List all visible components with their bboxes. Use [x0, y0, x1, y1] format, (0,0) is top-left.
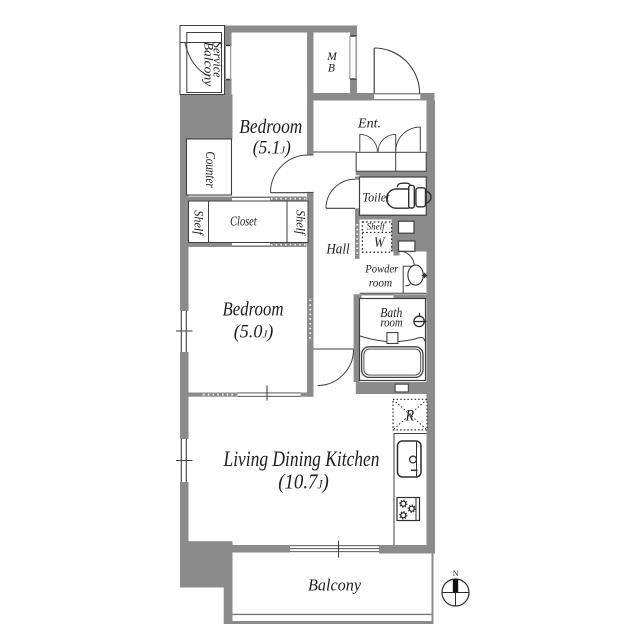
svg-text:Toilet: Toilet	[363, 189, 390, 204]
svg-text:M: M	[326, 51, 338, 63]
svg-text:Ent.: Ent.	[357, 117, 381, 132]
svg-text:Balcony: Balcony	[308, 575, 361, 594]
svg-text:Closet: Closet	[230, 214, 257, 229]
svg-text:Living Dining Kitchen: Living Dining Kitchen	[223, 446, 380, 471]
svg-text:Shelf: Shelf	[192, 210, 206, 236]
svg-text:Shelf: Shelf	[293, 210, 307, 236]
svg-text:room: room	[380, 316, 402, 330]
svg-text:Bedroom: Bedroom	[239, 116, 302, 138]
svg-text:room: room	[369, 277, 393, 289]
svg-text:R: R	[405, 408, 415, 425]
svg-text:Counter: Counter	[202, 151, 217, 188]
svg-text:Hall: Hall	[326, 241, 350, 258]
svg-text:Balcony: Balcony	[201, 42, 215, 87]
svg-text:B: B	[328, 62, 335, 74]
svg-text:Shelf: Shelf	[367, 222, 386, 232]
svg-text:(5.1J): (5.1J)	[253, 139, 291, 159]
svg-text:Powder: Powder	[364, 264, 399, 276]
svg-text:(5.0J): (5.0J)	[234, 323, 274, 343]
svg-text:Bedroom: Bedroom	[223, 299, 284, 321]
svg-text:W: W	[374, 235, 386, 251]
svg-text:N: N	[453, 569, 459, 578]
